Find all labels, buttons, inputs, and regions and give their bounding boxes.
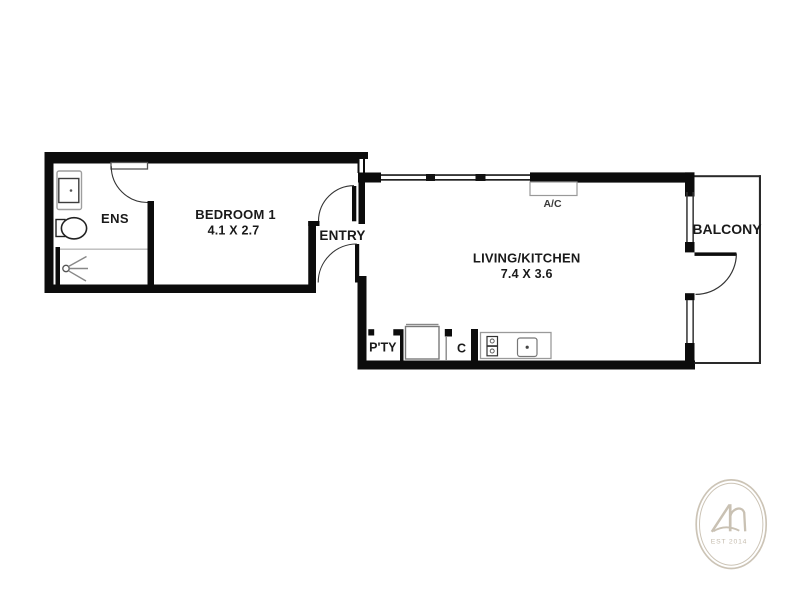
svg-text:4.1 X 2.7: 4.1 X 2.7 <box>208 224 260 238</box>
svg-text:EST 2014: EST 2014 <box>711 538 748 545</box>
svg-text:C: C <box>457 341 466 355</box>
svg-text:ENS: ENS <box>101 211 129 226</box>
svg-text:A/C: A/C <box>543 198 562 210</box>
svg-text:BALCONY: BALCONY <box>692 221 762 237</box>
svg-text:7.4 X 3.6: 7.4 X 3.6 <box>501 267 553 281</box>
svg-text:LIVING/KITCHEN: LIVING/KITCHEN <box>473 251 581 266</box>
svg-text:P'TY: P'TY <box>369 340 397 354</box>
svg-text:ENTRY: ENTRY <box>319 228 365 243</box>
svg-text:BEDROOM 1: BEDROOM 1 <box>195 207 276 222</box>
